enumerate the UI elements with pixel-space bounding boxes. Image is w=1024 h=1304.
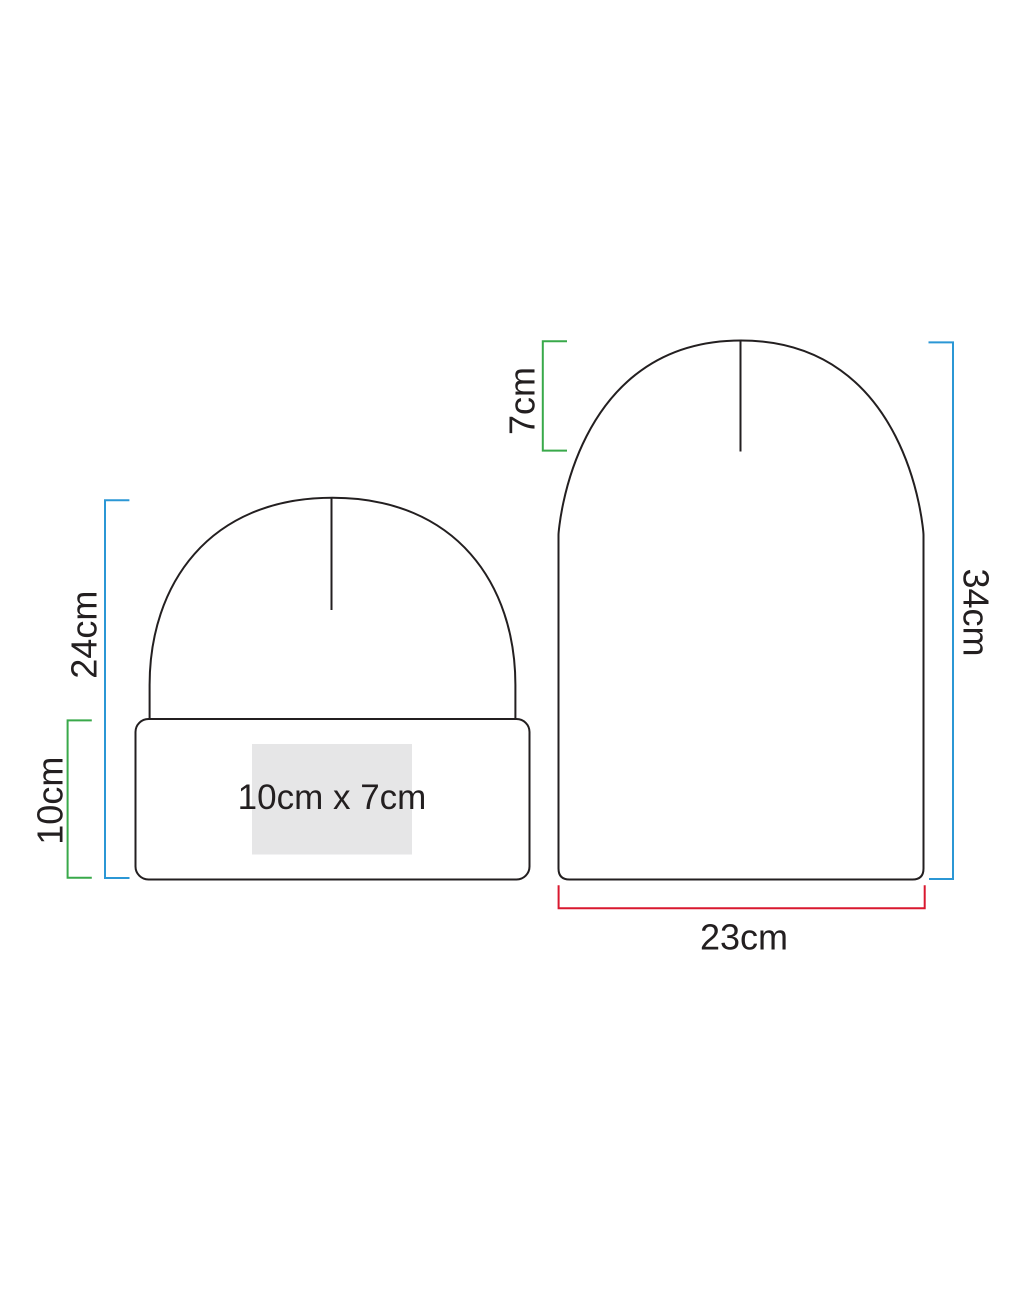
svg-text:34cm: 34cm	[956, 568, 997, 656]
svg-text:24cm: 24cm	[64, 591, 105, 679]
svg-text:7cm: 7cm	[502, 367, 543, 435]
svg-text:10cm: 10cm	[30, 757, 71, 845]
svg-text:10cm x 7cm: 10cm x 7cm	[238, 778, 427, 817]
svg-text:23cm: 23cm	[700, 916, 788, 957]
